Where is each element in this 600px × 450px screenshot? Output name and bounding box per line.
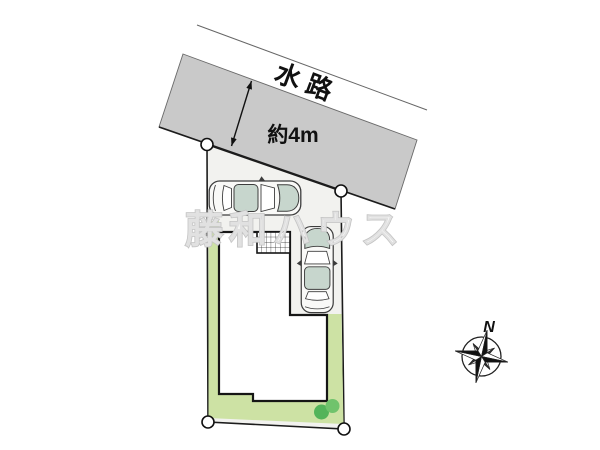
compass-north-label: N xyxy=(483,319,495,336)
site-plan-canvas: 水路 約4m xyxy=(0,0,600,450)
site-plan-drawing: 水路 約4m xyxy=(0,0,600,450)
car-rear-window xyxy=(222,186,231,211)
car-hood xyxy=(278,185,299,211)
compass-star xyxy=(449,324,513,388)
bush xyxy=(326,399,340,413)
car-roof-glass xyxy=(234,185,258,212)
survey-marker xyxy=(338,423,350,435)
survey-marker xyxy=(201,139,213,151)
car-windshield xyxy=(305,251,330,264)
survey-marker xyxy=(202,416,214,428)
watermark-text: 藤和ハウス xyxy=(185,210,405,252)
survey-marker xyxy=(335,185,347,197)
width-dimension-label: 約4m xyxy=(267,123,318,147)
compass-rose: N xyxy=(449,319,513,389)
car-roof-glass xyxy=(305,267,330,290)
car-windshield xyxy=(261,185,275,212)
car-rear-window xyxy=(305,292,329,301)
